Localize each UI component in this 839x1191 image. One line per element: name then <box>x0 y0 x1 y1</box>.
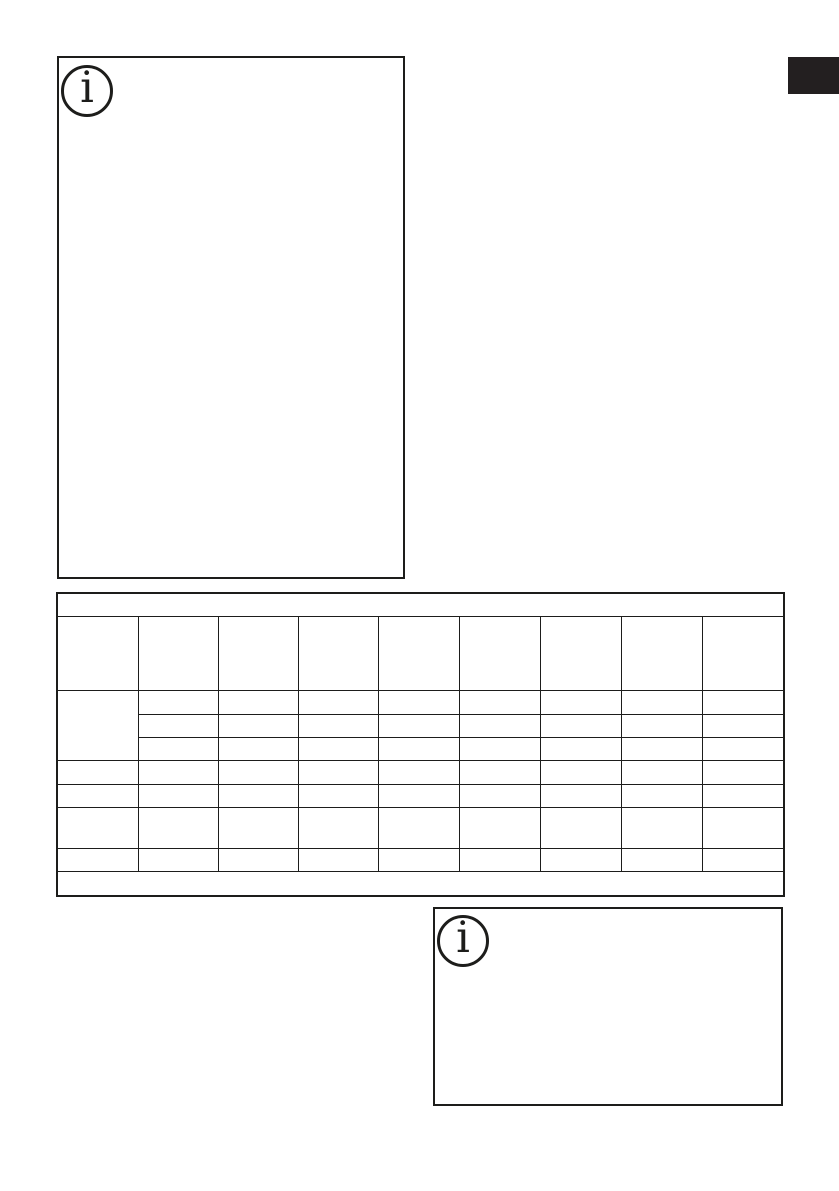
table-group-subrow <box>57 714 784 737</box>
table-cell <box>138 848 218 871</box>
table-cell <box>138 760 218 784</box>
table-group-subrow <box>57 690 784 714</box>
table-cell <box>138 737 218 760</box>
table-row <box>57 848 784 871</box>
table-cell <box>218 690 298 714</box>
table-cell <box>378 760 459 784</box>
table-cell <box>621 848 702 871</box>
table-cell <box>702 807 784 848</box>
table-cell <box>459 690 540 714</box>
table-footnote-cell <box>57 871 784 896</box>
table-cell <box>57 807 138 848</box>
table-cell <box>298 690 378 714</box>
table-cell <box>459 784 540 807</box>
table-cell <box>702 690 784 714</box>
table-row <box>57 784 784 807</box>
table-header-cell <box>378 616 459 690</box>
table-cell <box>621 690 702 714</box>
table-header-cell <box>459 616 540 690</box>
table-cell <box>57 760 138 784</box>
table-footnote-row <box>57 871 784 896</box>
table-header-cell <box>57 616 138 690</box>
table-cell <box>459 807 540 848</box>
table-cell <box>218 714 298 737</box>
table-cell <box>378 807 459 848</box>
table-cell <box>138 784 218 807</box>
table-cell <box>621 737 702 760</box>
table-title-row <box>57 593 784 616</box>
table-cell <box>218 848 298 871</box>
table-cell <box>298 807 378 848</box>
table-cell <box>298 848 378 871</box>
table-group-subrow <box>57 737 784 760</box>
table-cell <box>138 714 218 737</box>
table-cell <box>702 760 784 784</box>
document-page: i <box>0 0 839 1191</box>
table-cell <box>540 848 621 871</box>
table-cell <box>621 760 702 784</box>
table-cell <box>459 737 540 760</box>
table-cell <box>621 807 702 848</box>
table-cell <box>218 760 298 784</box>
table-cell <box>378 784 459 807</box>
table-cell <box>540 807 621 848</box>
table-cell <box>702 714 784 737</box>
table-cell <box>298 760 378 784</box>
table-group-label-cell <box>57 690 138 760</box>
table-cell <box>540 760 621 784</box>
table-cell <box>218 784 298 807</box>
table-cell <box>459 848 540 871</box>
table-header-cell <box>138 616 218 690</box>
table-cell <box>540 737 621 760</box>
table-cell <box>702 784 784 807</box>
table-title-cell <box>57 593 784 616</box>
table-cell <box>459 760 540 784</box>
table-header-cell <box>298 616 378 690</box>
table-cell <box>621 714 702 737</box>
table-cell <box>378 737 459 760</box>
section-tab <box>788 57 839 94</box>
table-cell <box>702 737 784 760</box>
table-header-row <box>57 616 784 690</box>
table-header-cell <box>218 616 298 690</box>
info-icon: i <box>437 915 489 967</box>
table-header-cell <box>702 616 784 690</box>
table-cell <box>57 784 138 807</box>
table-cell <box>218 737 298 760</box>
info-note-box-top-left: i <box>57 56 405 579</box>
table-cell <box>298 737 378 760</box>
table-header-cell <box>621 616 702 690</box>
table-cell <box>702 848 784 871</box>
table-row <box>57 807 784 848</box>
info-note-box-bottom-right: i <box>433 907 783 1106</box>
info-icon-glyph: i <box>80 67 94 110</box>
table-cell <box>459 714 540 737</box>
table-cell <box>378 690 459 714</box>
table-cell <box>138 690 218 714</box>
table-cell <box>138 807 218 848</box>
info-icon-glyph: i <box>456 917 470 960</box>
table-cell <box>378 848 459 871</box>
table-cell <box>298 714 378 737</box>
table-cell <box>621 784 702 807</box>
table-cell <box>57 848 138 871</box>
table-cell <box>298 784 378 807</box>
table-cell <box>218 807 298 848</box>
table-cell <box>540 784 621 807</box>
spec-table <box>56 592 785 897</box>
table-header-cell <box>540 616 621 690</box>
info-icon: i <box>61 65 113 117</box>
table-cell <box>540 714 621 737</box>
table-cell <box>540 690 621 714</box>
table-cell <box>378 714 459 737</box>
table-row <box>57 760 784 784</box>
